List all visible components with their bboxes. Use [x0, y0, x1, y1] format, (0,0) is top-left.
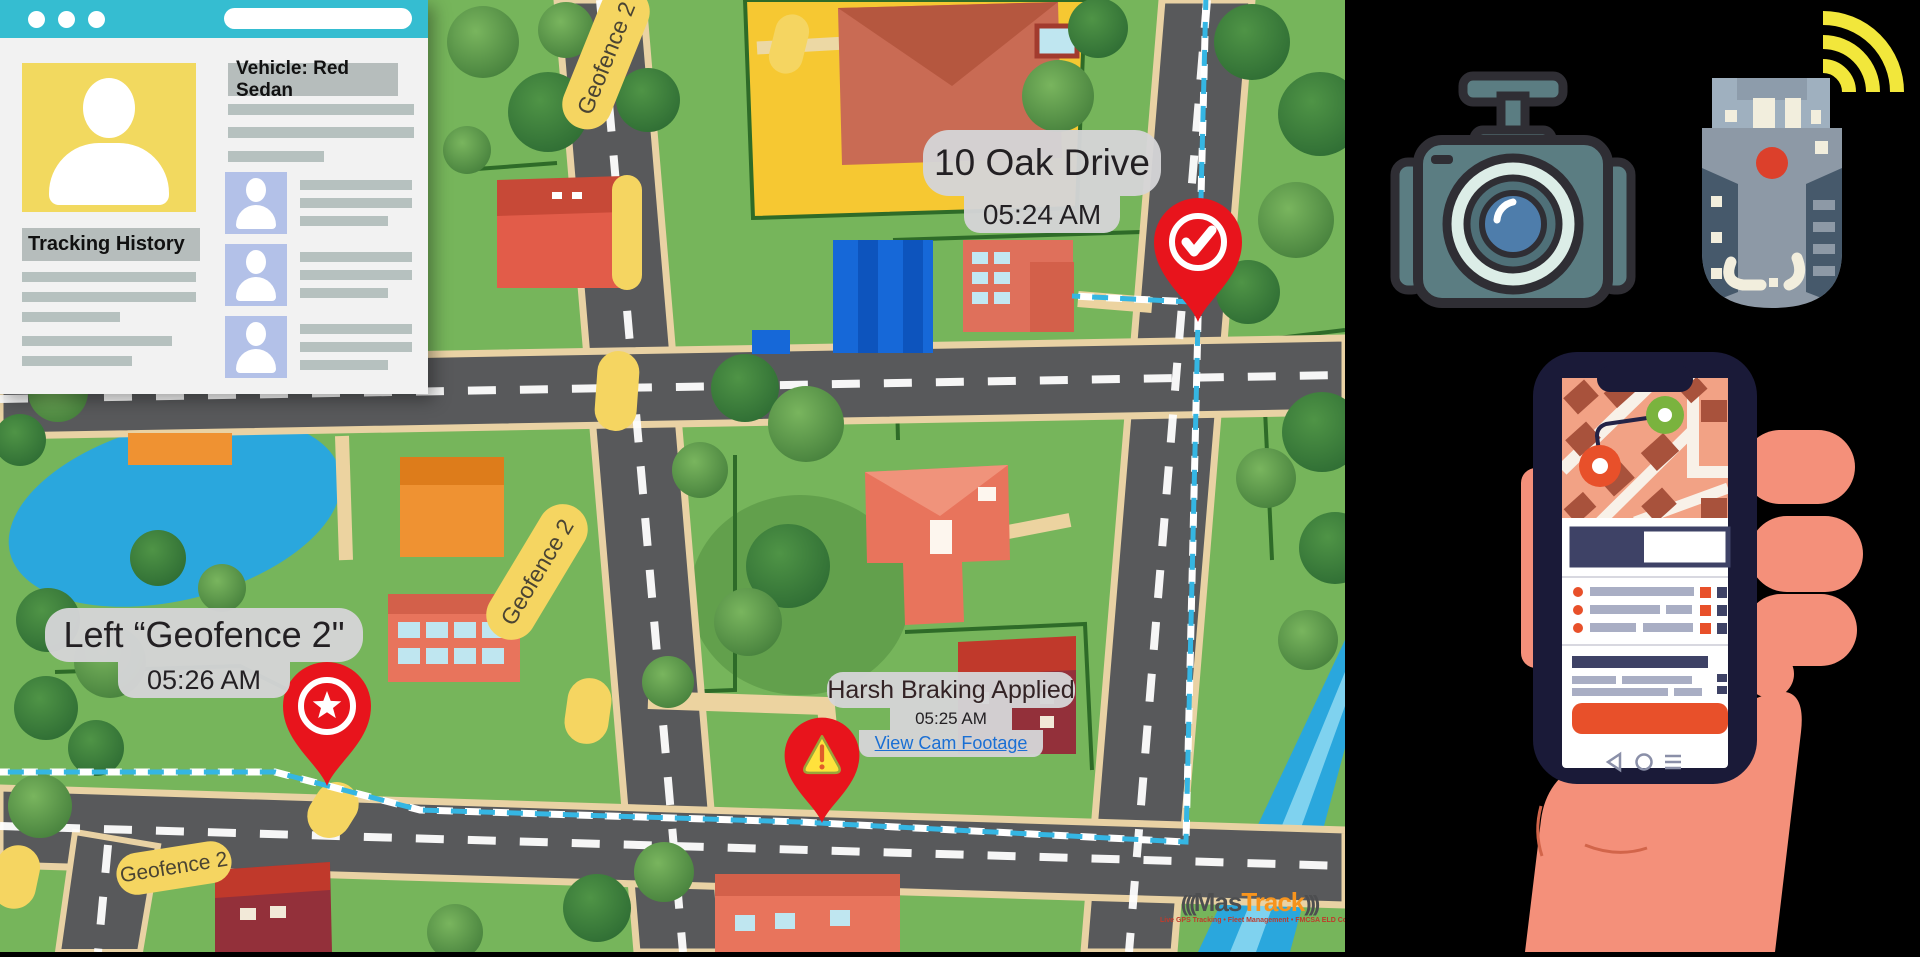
placeholder-text-line [300, 270, 412, 280]
window-dot-icon [58, 11, 75, 28]
contact-avatar [225, 244, 287, 306]
placeholder-text-line [22, 356, 132, 366]
tooltip-exit-title: Left “Geofence 2" [45, 608, 363, 662]
view-cam-footage-link[interactable]: View Cam Footage [875, 733, 1028, 754]
progress-fill [1572, 529, 1644, 565]
window-dot-icon [28, 11, 45, 28]
mastrack-logo: (((MasTrack))) Live GPS Tracking • Fleet… [1160, 889, 1338, 924]
device-showcase-panel [1345, 0, 1920, 952]
tooltip-harsh-time: 05:25 AM [890, 708, 1012, 730]
profile-photo [22, 63, 196, 212]
contact-avatar [225, 316, 287, 378]
person-icon [225, 244, 287, 306]
phone-map-screen [1562, 376, 1728, 524]
placeholder-text-line [300, 252, 412, 262]
tooltip-arrival-title: 10 Oak Drive [923, 130, 1161, 196]
placeholder-text-line [300, 342, 412, 352]
phone-mockup [1533, 352, 1757, 784]
placeholder-text-line [300, 216, 388, 226]
placeholder-text-line [228, 127, 414, 138]
devices-canvas [1345, 0, 1920, 952]
address-bar [224, 8, 412, 29]
window-dot-icon [88, 11, 105, 28]
phone-notch [1597, 366, 1693, 392]
finger [1743, 430, 1855, 504]
browser-window-mockup: Tracking History Vehicle: Red Sedan [0, 0, 428, 394]
placeholder-text-line [228, 151, 324, 162]
tooltip-arrival: 10 Oak Drive 05:24 AM [923, 130, 1161, 233]
tooltip-harsh-braking: Harsh Braking Applied 05:25 AM View Cam … [827, 672, 1075, 757]
map-illustration: Geofence 2 Geofence 2 Geofence 2 (((MasT… [0, 0, 1345, 952]
placeholder-text-line [300, 288, 388, 298]
browser-titlebar [0, 0, 428, 38]
tooltip-harsh-title: Harsh Braking Applied [827, 672, 1075, 708]
wifi-signal-icon [1823, 18, 1897, 92]
tooltip-exit-time: 05:26 AM [118, 662, 290, 698]
person-icon [225, 172, 287, 234]
tooltip-geofence-exit: Left “Geofence 2" 05:26 AM [45, 608, 363, 698]
logo-name-mas: Mas [1194, 887, 1242, 917]
person-icon [225, 316, 287, 378]
placeholder-text-line [22, 312, 120, 322]
placeholder-text-line [22, 292, 196, 302]
placeholder-text-line [22, 272, 196, 282]
logo-tagline: Live GPS Tracking • Fleet Management • F… [1160, 917, 1338, 924]
stage: Geofence 2 Geofence 2 Geofence 2 (((MasT… [0, 0, 1920, 952]
dash-camera-icon [1395, 76, 1631, 303]
placeholder-text-line [22, 336, 172, 346]
cta-button[interactable] [1572, 703, 1728, 734]
person-icon [22, 63, 196, 212]
placeholder-text-line [300, 198, 412, 208]
signal-left-icon: ((( [1181, 891, 1194, 916]
signal-right-icon: ))) [1304, 891, 1317, 916]
tooltip-arrival-time: 05:24 AM [964, 196, 1120, 233]
vehicle-header-label: Vehicle: Red Sedan [228, 63, 398, 96]
placeholder-text-line [300, 180, 412, 190]
obd-tracker-icon [1702, 18, 1897, 308]
tracking-history-label: Tracking History [22, 228, 200, 261]
finger [1749, 516, 1863, 592]
placeholder-text-line [300, 324, 412, 334]
contact-avatar [225, 172, 287, 234]
card-title-bar [1572, 656, 1708, 668]
placeholder-text-line [300, 360, 388, 370]
placeholder-text-line [228, 104, 414, 115]
logo-name-track: Track [1241, 887, 1304, 917]
